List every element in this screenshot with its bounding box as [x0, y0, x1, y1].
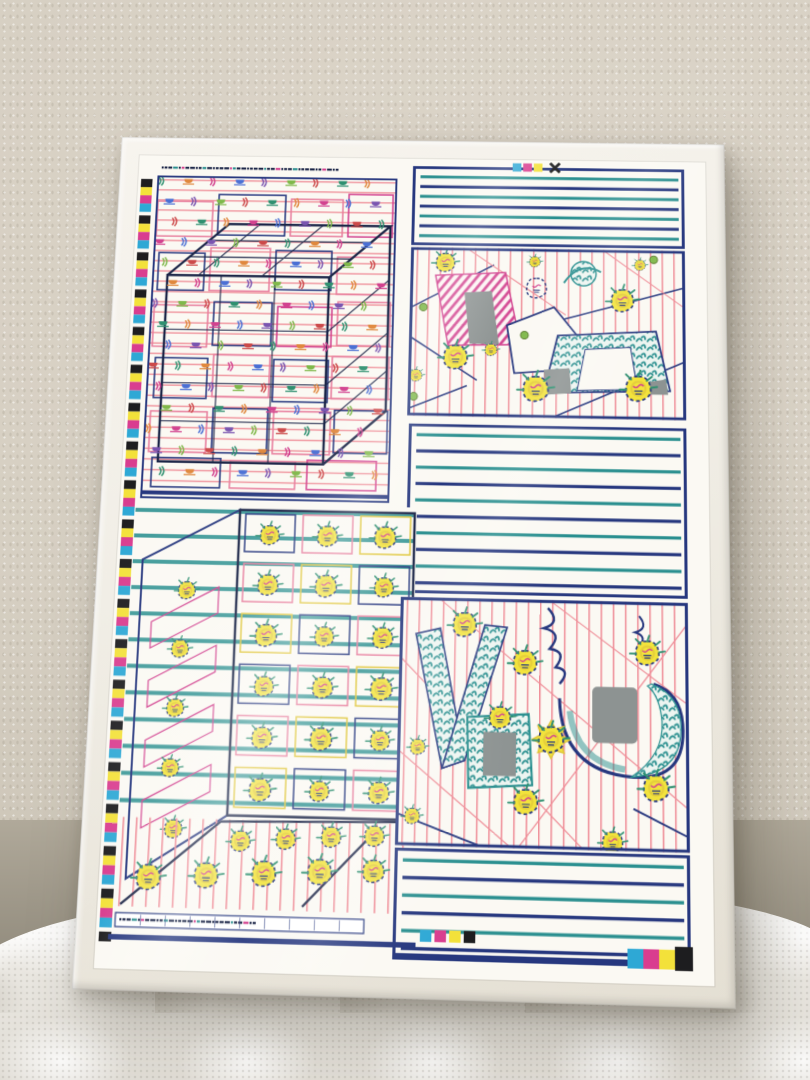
cmyk-ladder-swatch: [102, 865, 115, 875]
cmyk-corner-swatch: [675, 947, 693, 972]
cmyk-ladder-swatch: [140, 195, 152, 203]
cmyk-ladder-swatch: [117, 599, 129, 608]
registration-mark: [513, 163, 560, 173]
cmyk-ladder-swatch: [103, 846, 116, 856]
cmyk-ladder-swatch: [112, 698, 125, 708]
cube-panel: [140, 175, 397, 502]
cmyk-ladder-swatch: [101, 889, 114, 899]
cmyk-ladder-swatch: [136, 261, 148, 270]
picture-frame: [72, 137, 736, 1009]
cmyk-ladder-swatch: [135, 277, 147, 286]
cmyk-ladder-swatch: [102, 875, 115, 885]
cmyk-ladder-swatch: [114, 648, 127, 657]
cmyk-ladder-swatch: [137, 252, 149, 261]
cmyk-ladder-swatch: [112, 689, 125, 698]
ruled-panel-middle: [405, 423, 688, 599]
cmyk-ladder-swatch: [138, 232, 150, 240]
cmyk-ladder-swatch: [122, 519, 134, 528]
cmyk-ladder-swatch: [104, 832, 117, 842]
cmyk-ladder-swatch: [118, 586, 130, 595]
cmyk-ladder-swatch: [113, 666, 126, 675]
cmyk-ladder-swatch: [122, 507, 134, 516]
cmyk-ladder-swatch: [137, 240, 149, 248]
cmyk-ladder-swatch: [99, 917, 112, 927]
cmyk-ladder-swatch: [127, 429, 139, 438]
cmyk-ladder-swatch: [133, 315, 145, 324]
shelf-panel: [110, 502, 416, 939]
poster-paper: [94, 155, 715, 986]
cmyk-ladder-swatch: [121, 537, 133, 546]
cmyk-ladder-swatch: [110, 721, 123, 731]
cmyk-ladder-swatch: [135, 289, 147, 298]
cmyk-ladder-swatch: [123, 498, 135, 507]
cmyk-ladder-swatch: [130, 365, 142, 374]
character-panel-mid: [406, 247, 686, 421]
cmyk-ladder-swatch: [116, 617, 128, 626]
cmyk-ladder-swatch: [107, 771, 120, 781]
cmyk-ladder-swatch: [109, 749, 122, 759]
cmyk-ladder-swatch: [139, 204, 151, 212]
cmyk-ladder-swatch: [107, 781, 120, 791]
cmyk-ladder-swatch: [100, 898, 113, 908]
cmyk-ladder-swatch: [108, 762, 121, 772]
cmyk-swatch: [434, 930, 446, 942]
cmyk-ladder-swatch: [132, 344, 144, 353]
cmyk-ladder-swatch: [128, 411, 140, 420]
cmyk-ladder-swatch: [141, 179, 153, 187]
cmyk-ladder-swatch: [126, 441, 138, 450]
cmyk-ladder-swatch: [136, 269, 148, 278]
photo-scene: [0, 0, 810, 1080]
cmyk-corner-swatch: [659, 950, 675, 970]
cmyk-ladder-swatch: [110, 730, 123, 740]
cmyk-ladder-swatch: [119, 559, 131, 568]
cmyk-ladder-swatch: [125, 459, 137, 468]
cmyk-ladder-swatch: [118, 577, 130, 586]
cmyk-ladder-swatch: [131, 352, 143, 361]
cmyk-ladder-swatch: [105, 823, 118, 833]
cmyk-ladder-swatch: [129, 390, 141, 399]
cmyk-ladder-swatch: [120, 546, 132, 555]
cmyk-ladder-swatch: [116, 626, 128, 635]
cmyk-ladder-swatch: [117, 608, 129, 617]
cmyk-ladder-swatch: [134, 306, 146, 315]
cmyk-ladder-swatch: [140, 187, 152, 195]
character-panel-bottom: [395, 597, 690, 855]
cmyk-swatch: [464, 931, 476, 943]
cmyk-ladder-swatch: [103, 855, 116, 865]
cmyk-ladder-swatch: [125, 467, 137, 476]
cmyk-ladder-swatch: [114, 657, 127, 666]
cmyk-ladder-swatch: [138, 224, 150, 232]
cmyk-ladder-swatch: [129, 382, 141, 391]
poster-artwork: [94, 155, 715, 986]
cmyk-ladder-swatch: [127, 420, 139, 429]
cmyk-ladder-swatch: [119, 568, 131, 577]
cmyk-ladder-swatch: [130, 373, 142, 382]
cmyk-ladder-swatch: [132, 335, 144, 344]
cmyk-ladder-swatch: [115, 639, 127, 648]
cmyk-corner-swatch: [627, 949, 643, 969]
cmyk-ladder-swatch: [134, 298, 146, 307]
cmyk-ladder-swatch: [111, 707, 124, 717]
cmyk-ladder-swatch: [113, 680, 126, 689]
cmyk-ladder-swatch: [100, 908, 113, 918]
cmyk-ladder-swatch: [123, 489, 135, 498]
cmyk-ladder-swatch: [126, 450, 138, 459]
cmyk-ladder-swatch: [105, 813, 118, 823]
cmyk-ladder-swatch: [106, 804, 119, 814]
cmyk-ladder-swatch: [139, 215, 151, 223]
cmyk-ladder-swatch: [109, 739, 122, 749]
cmyk-swatch: [420, 930, 432, 942]
cmyk-corner-swatch: [643, 949, 659, 969]
cmyk-ladder-swatch: [121, 528, 133, 537]
cmyk-ladder-swatch: [124, 480, 136, 489]
ruled-panel-top: [411, 166, 685, 249]
cmyk-ladder-swatch: [132, 327, 144, 336]
cmyk-ladder-swatch: [106, 790, 119, 800]
cmyk-ladder-swatch: [128, 403, 140, 412]
cmyk-swatch: [449, 931, 461, 943]
